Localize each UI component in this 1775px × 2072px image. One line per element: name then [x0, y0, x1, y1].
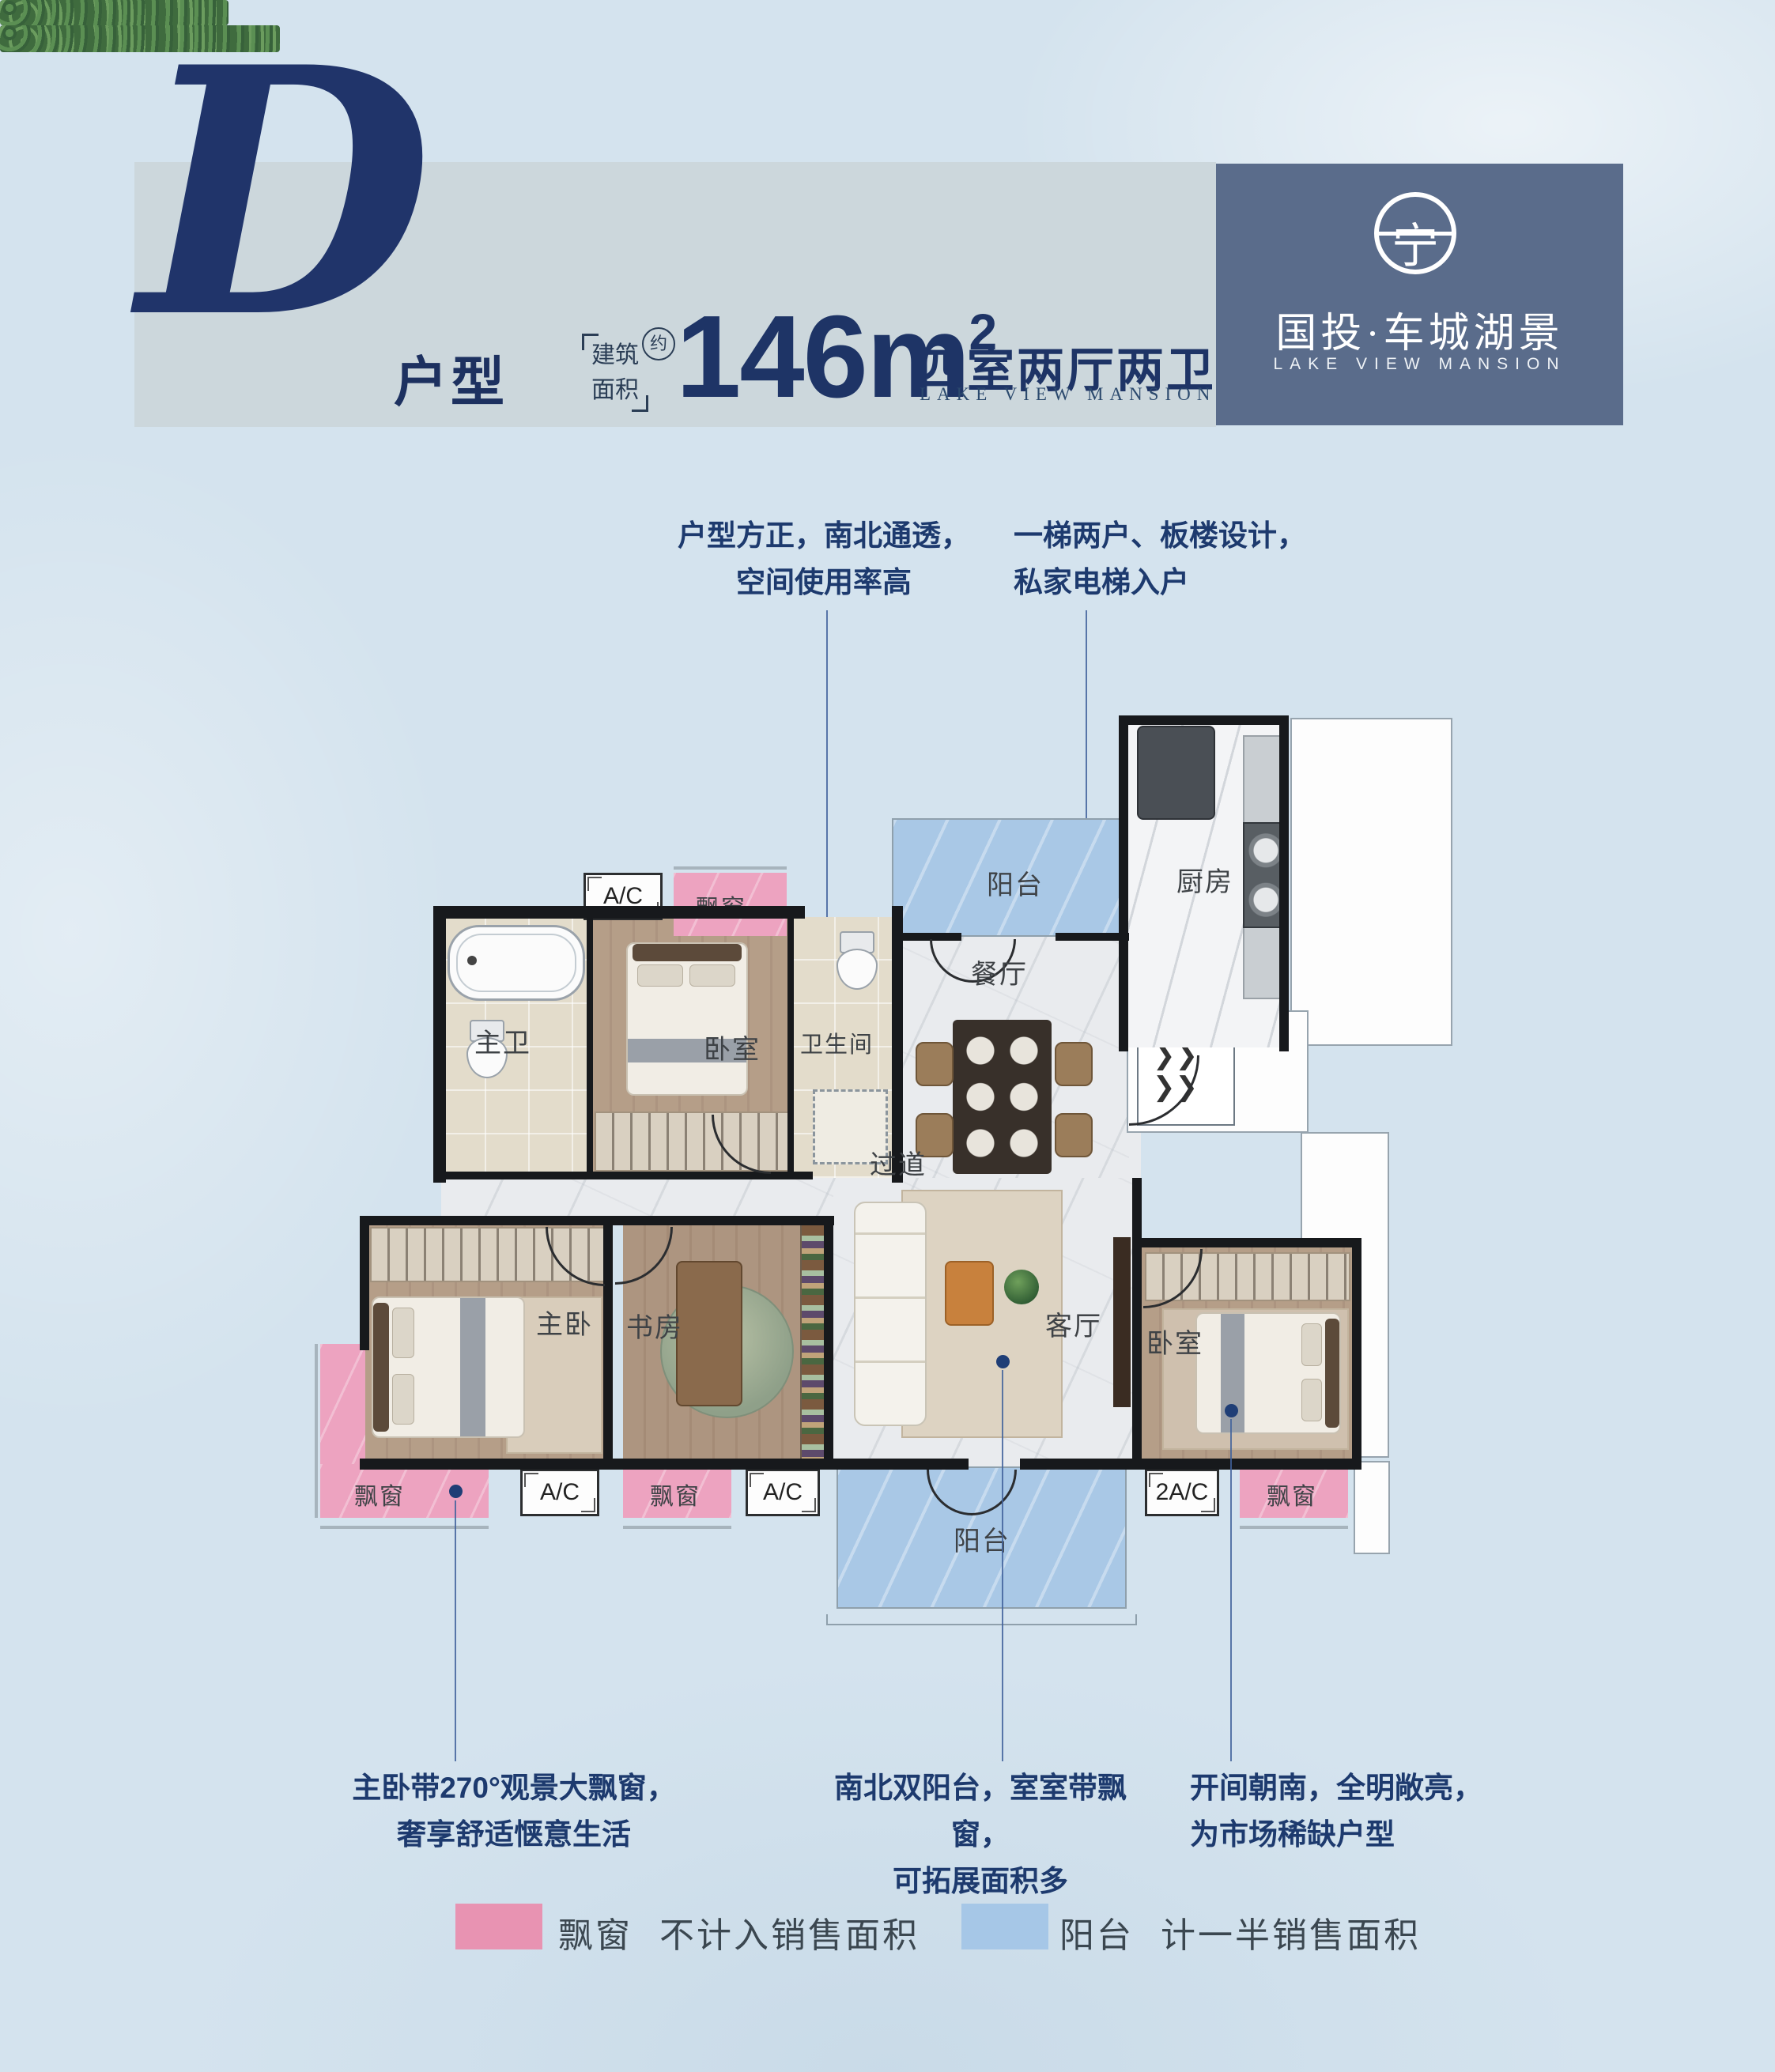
- label-kitchen: 厨房: [1176, 860, 1233, 899]
- tv-console-icon: [1113, 1237, 1131, 1407]
- label-corridor: 过道: [870, 1143, 927, 1182]
- wall: [587, 917, 593, 1172]
- label-master-bedroom: 主卧: [536, 1303, 593, 1342]
- brand-emblem-char: 宁: [1379, 208, 1452, 277]
- sill-bay-left-vert: [315, 1344, 318, 1518]
- legend-bay-swatch: [455, 1904, 542, 1949]
- legend-bay-label: 飘窗: [558, 1916, 633, 1955]
- leader-dot-bay-left: [449, 1485, 463, 1498]
- wall: [360, 1216, 613, 1225]
- label-study: 书房: [626, 1306, 683, 1345]
- desk-icon: [676, 1261, 742, 1406]
- wall: [787, 917, 794, 1172]
- bay-left-label: 飘窗: [354, 1477, 405, 1512]
- legend-bay-desc: 不计入销售面积: [659, 1916, 920, 1955]
- label-bedroom-south: 卧室: [1146, 1322, 1203, 1361]
- wall: [892, 906, 903, 1183]
- legend-balcony-text: 阳台计一半销售面积: [1059, 1907, 1421, 1957]
- brand-name: 国投·车城湖景: [1216, 300, 1623, 359]
- leader-dot-living: [996, 1355, 1010, 1368]
- wall: [613, 1216, 834, 1225]
- bed-master-icon: [372, 1296, 525, 1438]
- label-bathroom: 卫生间: [800, 1026, 874, 1059]
- unit-letter-suffix: 户型: [394, 338, 508, 417]
- legend-bay-text: 飘窗不计入销售面积: [558, 1907, 920, 1957]
- bathtub-icon: [448, 925, 585, 1001]
- wall: [1119, 715, 1289, 725]
- brand-block: 宁 国投·车城湖景 LAKE VIEW MANSION: [1216, 164, 1623, 425]
- bed-north-icon: [626, 942, 748, 1096]
- coffee-table-icon: [945, 1261, 994, 1326]
- wall: [1352, 1238, 1361, 1467]
- sofa-icon: [854, 1202, 927, 1426]
- wall: [433, 1172, 813, 1179]
- sill-bay-mid: [623, 1526, 731, 1529]
- wall: [1132, 1238, 1361, 1247]
- ac-box-left: A/C: [520, 1469, 599, 1516]
- leader-line-bottom-mid: [1002, 1370, 1003, 1761]
- callout-bottom-right: 开间朝南，全明敞亮， 为市场稀缺户型: [1190, 1764, 1490, 1858]
- wall: [360, 1216, 369, 1350]
- label-master-bath: 主卫: [474, 1021, 531, 1060]
- unit-spec-subtitle: LAKE VIEW MANSION: [920, 384, 1216, 405]
- dining-table-icon: [953, 1020, 1052, 1174]
- bay-mid-label: 飘窗: [650, 1477, 701, 1512]
- right-pillar: [1354, 1461, 1390, 1554]
- label-dining: 餐厅: [971, 953, 1028, 991]
- brand-emblem-icon: 宁: [1374, 192, 1456, 274]
- label-living: 客厅: [1045, 1304, 1102, 1343]
- bed-south-icon: [1195, 1312, 1341, 1434]
- area-label-line1: 建筑: [590, 338, 640, 373]
- bay-right-label: 飘窗: [1267, 1477, 1317, 1512]
- chair-icon: [1055, 1113, 1093, 1157]
- callout-bottom-left: 主卧带270°观景大飘窗， 奢享舒适惬意生活: [348, 1764, 680, 1858]
- wall: [360, 1459, 842, 1470]
- area-label-line2: 面积: [590, 373, 640, 408]
- unit-letter: D: [138, 24, 433, 364]
- wall: [1119, 715, 1128, 1051]
- wall: [824, 1216, 833, 1466]
- label-bedroom-north: 卧室: [704, 1028, 761, 1066]
- plant-living-icon: [1004, 1270, 1039, 1304]
- adjacent-unit-zone: [1290, 718, 1452, 1046]
- chair-icon: [916, 1042, 954, 1086]
- wall: [1132, 1178, 1142, 1466]
- callout-bottom-mid: 南北双阳台，室室带飘窗， 可拓展面积多: [814, 1764, 1146, 1905]
- leader-line-bottom-right: [1230, 1419, 1232, 1761]
- legend-balcony-swatch: [961, 1904, 1048, 1949]
- ac-box-mid: A/C: [746, 1469, 820, 1516]
- label-balcony-north: 阳台: [987, 863, 1044, 902]
- chair-icon: [1055, 1042, 1093, 1086]
- wall: [1020, 1459, 1361, 1470]
- leader-dot-bedroom-south: [1225, 1404, 1238, 1417]
- balcony-south-step: [826, 1614, 1137, 1625]
- wall: [433, 906, 805, 919]
- wall: [842, 1459, 969, 1470]
- sill-bay-right: [1240, 1526, 1348, 1529]
- leader-line-bottom-left: [455, 1500, 456, 1761]
- legend-balcony-desc: 计一半销售面积: [1161, 1916, 1421, 1955]
- wall: [1279, 715, 1289, 1051]
- sill-top: [674, 866, 787, 870]
- poster-page: D 户型 建筑 面积 约 146m2 四室两厅两卫 LAKE VIEW MANS…: [0, 0, 1775, 2072]
- wall: [433, 906, 446, 1183]
- callout-top-right: 一梯两户、板楼设计， 私家电梯入户: [1014, 512, 1314, 606]
- sill-bay-left: [320, 1526, 489, 1529]
- legend-balcony-label: 阳台: [1059, 1916, 1134, 1955]
- approx-badge: 约: [642, 327, 675, 360]
- area-label: 建筑 面积: [585, 335, 645, 410]
- callout-top-left: 户型方正，南北通透， 空间使用率高: [674, 512, 974, 606]
- ac-box-right: 2A/C: [1145, 1469, 1219, 1516]
- toilet-icon: [837, 931, 878, 990]
- brand-subtitle: LAKE VIEW MANSION: [1216, 355, 1623, 374]
- fridge-icon: [1137, 726, 1215, 820]
